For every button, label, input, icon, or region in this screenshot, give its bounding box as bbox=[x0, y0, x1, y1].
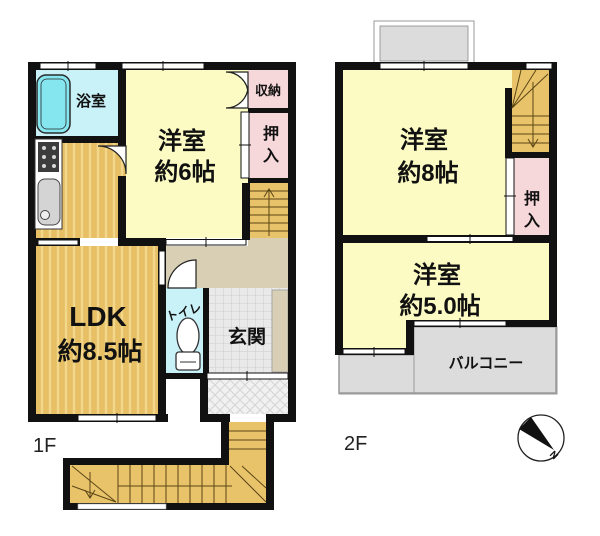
compass-icon: N bbox=[518, 415, 564, 462]
hall-patch bbox=[248, 238, 288, 246]
balcony-label: バルコニー bbox=[449, 355, 524, 372]
room6-size: 約6帖 bbox=[154, 158, 215, 186]
floor-plan-canvas: 浴室 洋室 約6帖 収納 押 入 LDK 約8.5帖 トイレ 玄関 1F bbox=[0, 0, 600, 536]
room5-name: 洋室 bbox=[413, 261, 461, 289]
room8-name: 洋室 bbox=[400, 126, 448, 154]
bath-label: 浴室 bbox=[76, 92, 106, 110]
floor-plan-page: 浴室 洋室 約6帖 収納 押 入 LDK 約8.5帖 トイレ 玄関 1F bbox=[0, 0, 600, 536]
floor1-label: 1F bbox=[33, 435, 56, 457]
ext-stairs-horizontal bbox=[70, 465, 266, 503]
room-oshiire-1f bbox=[249, 112, 288, 178]
entrance-label: 玄関 bbox=[228, 325, 266, 348]
floor2-label: 2F bbox=[344, 433, 367, 455]
toilet-icon bbox=[176, 318, 200, 370]
kitchen-counter bbox=[35, 139, 62, 229]
room6-name: 洋室 bbox=[158, 127, 206, 155]
oshiire-1f-char2: 入 bbox=[263, 147, 279, 165]
stairs-2f bbox=[512, 70, 549, 152]
bathtub-icon bbox=[37, 75, 70, 133]
sink-icon bbox=[38, 179, 60, 225]
oshiire-2f-char2: 入 bbox=[524, 212, 540, 230]
room5-size: 約5.0帖 bbox=[399, 292, 480, 320]
ldk-name: LDK bbox=[69, 301, 127, 332]
room-western-5-ext bbox=[343, 320, 406, 348]
floor-2-plan: 洋室 約8帖 押 入 洋室 約5.0帖 バルコニー 2F bbox=[335, 21, 557, 455]
stove-icon bbox=[38, 142, 59, 172]
bay-window bbox=[374, 21, 474, 65]
oshiire-2f-char1: 押 bbox=[524, 189, 540, 208]
floor-1-plan: 浴室 洋室 約6帖 収納 押 入 LDK 約8.5帖 トイレ 玄関 1F bbox=[28, 61, 296, 510]
ext-stairs-vertical bbox=[229, 422, 266, 465]
shoe-cabinet bbox=[272, 290, 288, 372]
room8-size: 約8帖 bbox=[397, 159, 458, 187]
storage-label: 収納 bbox=[255, 83, 281, 98]
entrance-porch bbox=[208, 379, 288, 414]
balcony-bottom bbox=[339, 355, 414, 394]
oshiire-1f-char1: 押 bbox=[263, 124, 279, 143]
ldk-size: 約8.5帖 bbox=[58, 337, 143, 366]
